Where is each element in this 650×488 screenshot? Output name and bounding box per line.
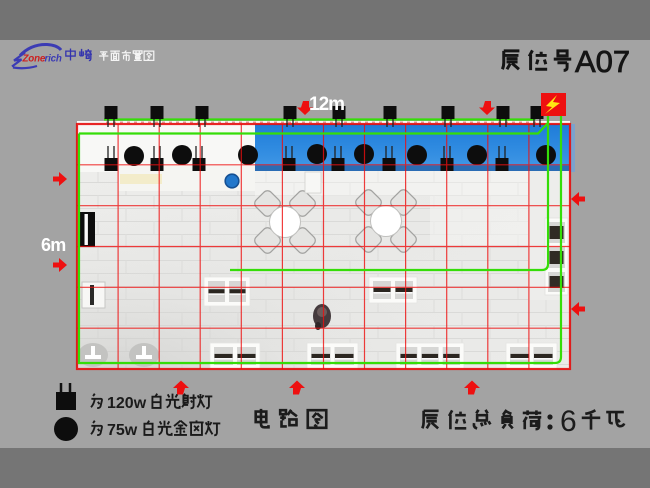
svg-text:12m: 12m — [309, 94, 344, 115]
svg-text:120w: 120w — [107, 395, 147, 412]
svg-text:Zone: Zone — [22, 54, 46, 65]
svg-text:6: 6 — [560, 405, 577, 438]
svg-text:A07: A07 — [575, 44, 630, 79]
svg-text:rich: rich — [45, 54, 62, 65]
svg-text:6m: 6m — [41, 235, 65, 255]
svg-text:75w: 75w — [107, 422, 138, 439]
